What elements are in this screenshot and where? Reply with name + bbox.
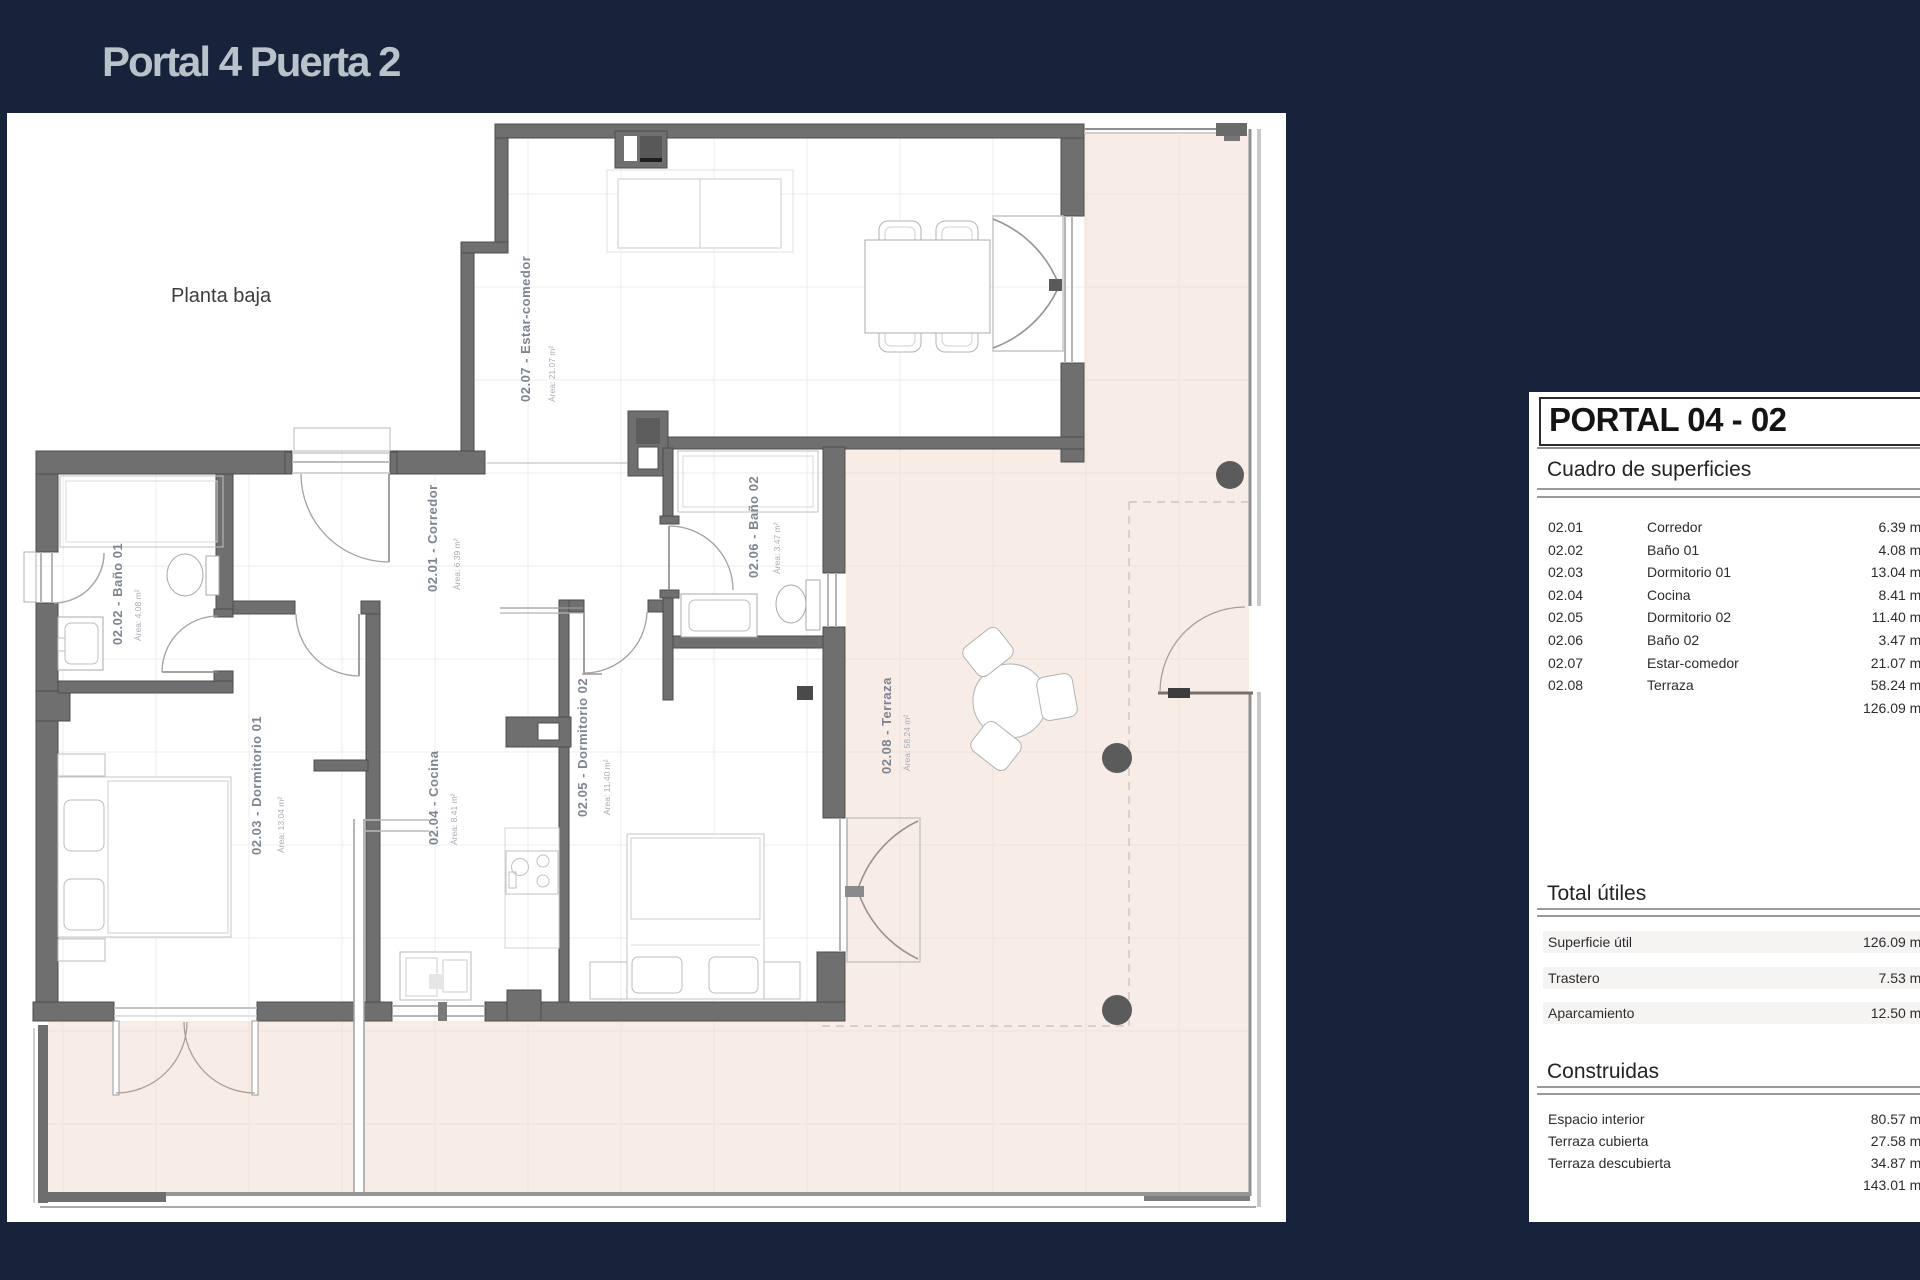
svg-text:02.01 - Corredor: 02.01 - Corredor: [425, 484, 440, 592]
svg-text:Planta baja: Planta baja: [171, 285, 272, 307]
svg-text:Área: 13.04 m²: Área: 13.04 m²: [276, 797, 286, 853]
svg-text:02.06 - Baño 02: 02.06 - Baño 02: [746, 476, 761, 578]
svg-text:Área: 3.47 m²: Área: 3.47 m²: [772, 522, 782, 574]
svg-text:Área: 6.39 m²: Área: 6.39 m²: [452, 538, 462, 590]
svg-text:02.04 - Cocina: 02.04 - Cocina: [426, 750, 441, 845]
svg-text:Área: 11.40 m²: Área: 11.40 m²: [602, 759, 612, 815]
svg-text:02.03 - Dormitorio 01: 02.03 - Dormitorio 01: [249, 716, 264, 855]
svg-text:02.08 - Terraza: 02.08 - Terraza: [879, 677, 894, 774]
svg-text:Área: 4.08 m²: Área: 4.08 m²: [133, 589, 143, 641]
svg-text:Área: 21.07 m²: Área: 21.07 m²: [547, 346, 557, 402]
svg-text:Área: 58.24 m²: Área: 58.24 m²: [902, 715, 912, 771]
svg-text:02.05 - Dormitorio 02: 02.05 - Dormitorio 02: [575, 678, 590, 817]
svg-text:02.02 - Baño 01: 02.02 - Baño 01: [110, 543, 125, 645]
svg-text:02.07 - Estar-comedor: 02.07 - Estar-comedor: [518, 256, 533, 402]
svg-text:Área: 8.41 m²: Área: 8.41 m²: [449, 793, 459, 845]
